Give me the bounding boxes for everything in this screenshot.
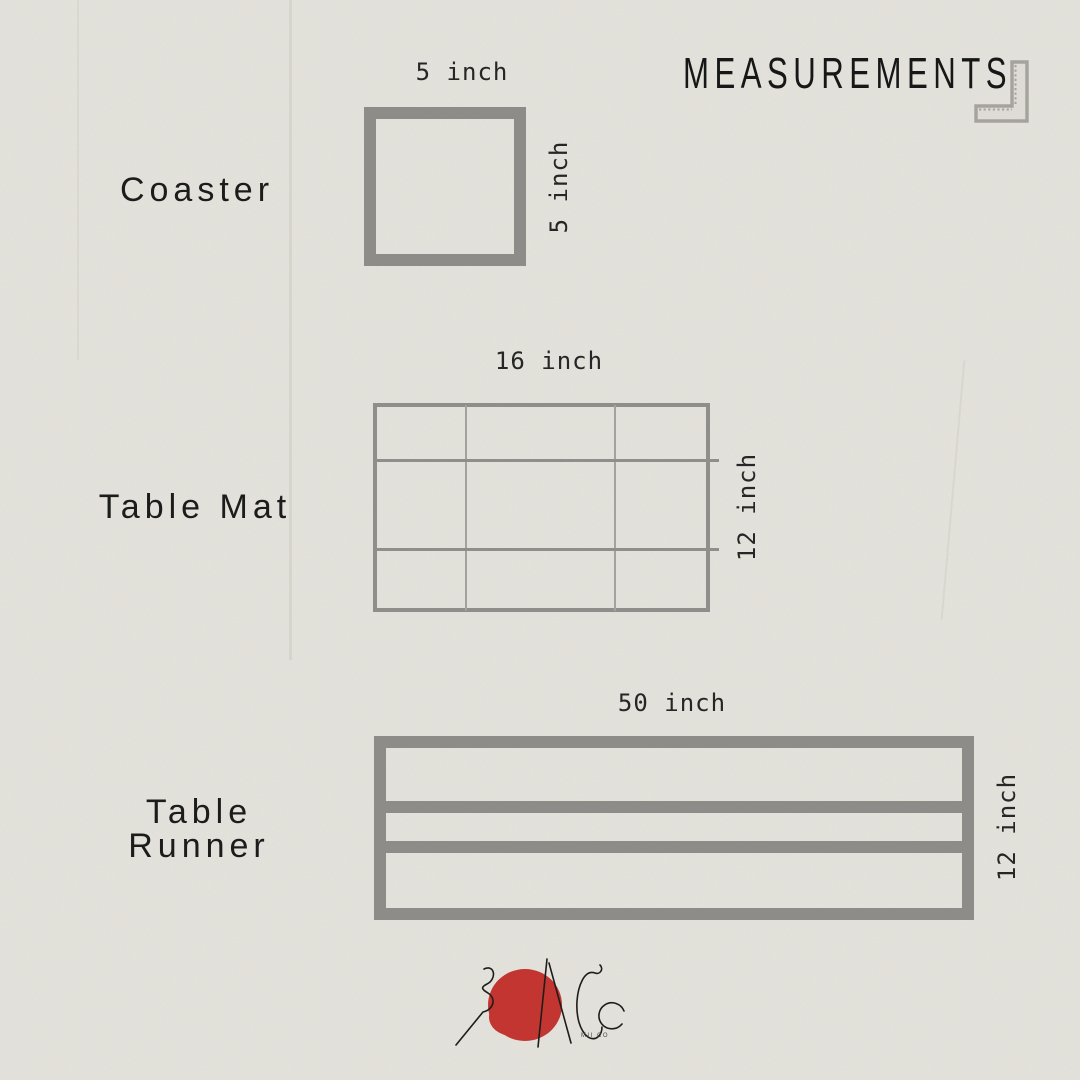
coaster-label: Coaster bbox=[120, 173, 274, 207]
table-runner-label: Table Runner bbox=[128, 795, 270, 863]
table-mat-diagram bbox=[373, 403, 710, 612]
coaster-width-label: 5 inch bbox=[416, 58, 509, 86]
table-runner-stripe bbox=[384, 801, 964, 813]
ruler-icon bbox=[973, 60, 1031, 124]
table-mat-label: Table Mat bbox=[99, 490, 291, 524]
paper-crease bbox=[941, 360, 966, 619]
page-title: MEASUREMENTS bbox=[683, 50, 1012, 99]
table-runner-height-label: 12 inch bbox=[993, 773, 1021, 881]
table-runner-stripe bbox=[384, 841, 964, 853]
logo-red-blob bbox=[488, 969, 562, 1041]
table-runner-label-line2: Runner bbox=[128, 829, 270, 863]
brand-logo: MII CO bbox=[450, 953, 650, 1063]
logo-caption: MII CO bbox=[581, 1033, 609, 1039]
paper-crease bbox=[77, 0, 79, 360]
table-mat-label-text: Table Mat bbox=[99, 490, 291, 524]
table-mat-width-label: 16 inch bbox=[495, 347, 603, 375]
table-mat-height-label: 12 inch bbox=[733, 453, 761, 561]
coaster-height-label: 5 inch bbox=[545, 141, 573, 234]
measurements-infographic: MEASUREMENTS Coaster 5 inch 5 inch Table… bbox=[0, 0, 1080, 1080]
coaster-diagram bbox=[364, 107, 526, 266]
table-runner-label-line1: Table bbox=[128, 795, 270, 829]
table-runner-diagram bbox=[374, 736, 974, 920]
paper-crease bbox=[289, 0, 292, 660]
table-runner-width-label: 50 inch bbox=[618, 689, 726, 717]
coaster-label-text: Coaster bbox=[120, 173, 274, 207]
